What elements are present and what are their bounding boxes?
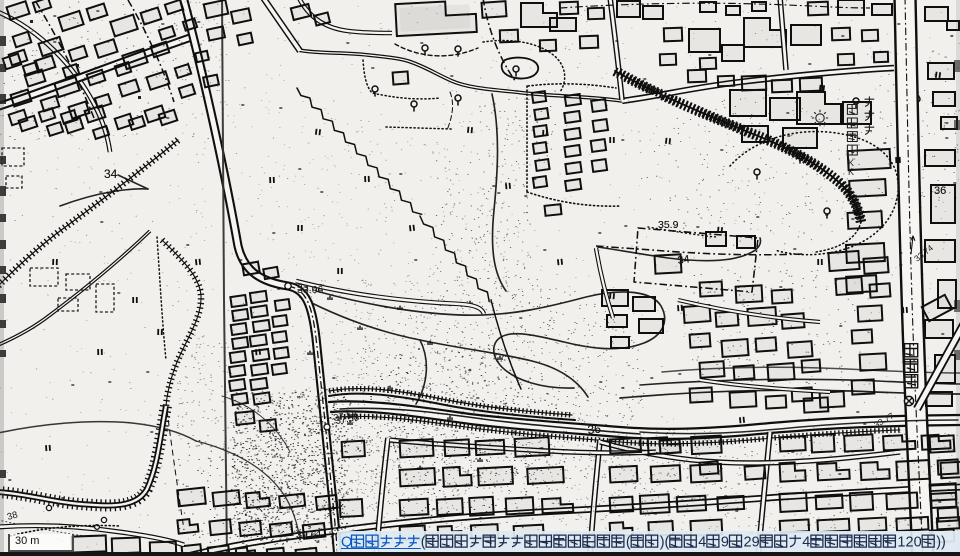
svg-text:(: ( [665,535,670,551]
svg-text:4: 4 [698,535,706,551]
svg-text:2: 2 [744,535,752,551]
svg-text:9: 9 [752,535,760,551]
svg-text:): ) [941,535,946,551]
svg-text:2: 2 [906,535,914,551]
svg-text:1: 1 [897,535,905,551]
svg-text:(: ( [421,535,426,551]
svg-text:(: ( [626,535,631,551]
svg-text:9: 9 [721,535,729,551]
svg-text:4: 4 [802,535,810,551]
svg-text:0: 0 [914,535,922,551]
